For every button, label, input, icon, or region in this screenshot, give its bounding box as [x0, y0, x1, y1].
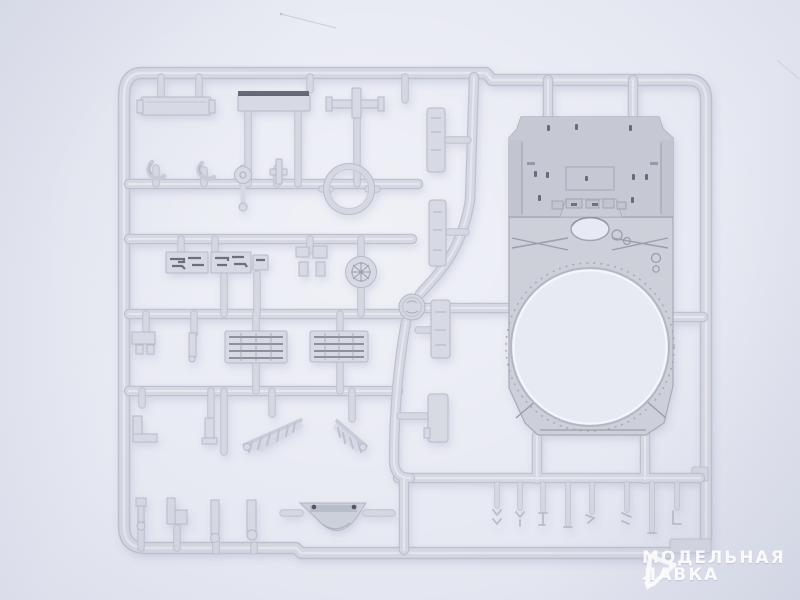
small-post-part-3 — [211, 500, 220, 543]
fan-disc-part — [346, 257, 377, 288]
side-plate-part-4 — [424, 394, 448, 442]
box-part-dark-top — [238, 91, 310, 111]
striped-fender-part — [166, 252, 268, 273]
mesh-grille-2 — [310, 331, 368, 362]
photo-canvas: МОДЕЛЬНАЯ ЛАВКА — [0, 0, 800, 600]
side-plate-part-2 — [429, 200, 446, 266]
small-post-part-1 — [136, 498, 146, 530]
model-shop-logo-icon — [642, 544, 678, 590]
watermark: МОДЕЛЬНАЯ ЛАВКА — [642, 544, 800, 584]
maker-medallion — [399, 294, 425, 320]
small-bracket-cluster — [132, 332, 196, 362]
box-part-1 — [137, 97, 215, 115]
small-post-part-4 — [247, 500, 257, 540]
side-plate-part-1 — [427, 108, 445, 172]
sprue-illustration — [0, 0, 800, 600]
side-plate-part-3 — [431, 300, 450, 358]
cross-bracket-part — [326, 88, 384, 118]
pin-parts-row — [493, 484, 681, 533]
hull-part — [506, 117, 674, 435]
wing-part-2 — [333, 421, 367, 452]
rod-part — [202, 418, 217, 444]
small-post-part-2 — [167, 498, 187, 524]
bow-plate-part — [300, 503, 366, 531]
mesh-grille-1 — [225, 331, 287, 363]
wing-part-1 — [243, 419, 303, 452]
l-bracket-part — [133, 416, 157, 442]
